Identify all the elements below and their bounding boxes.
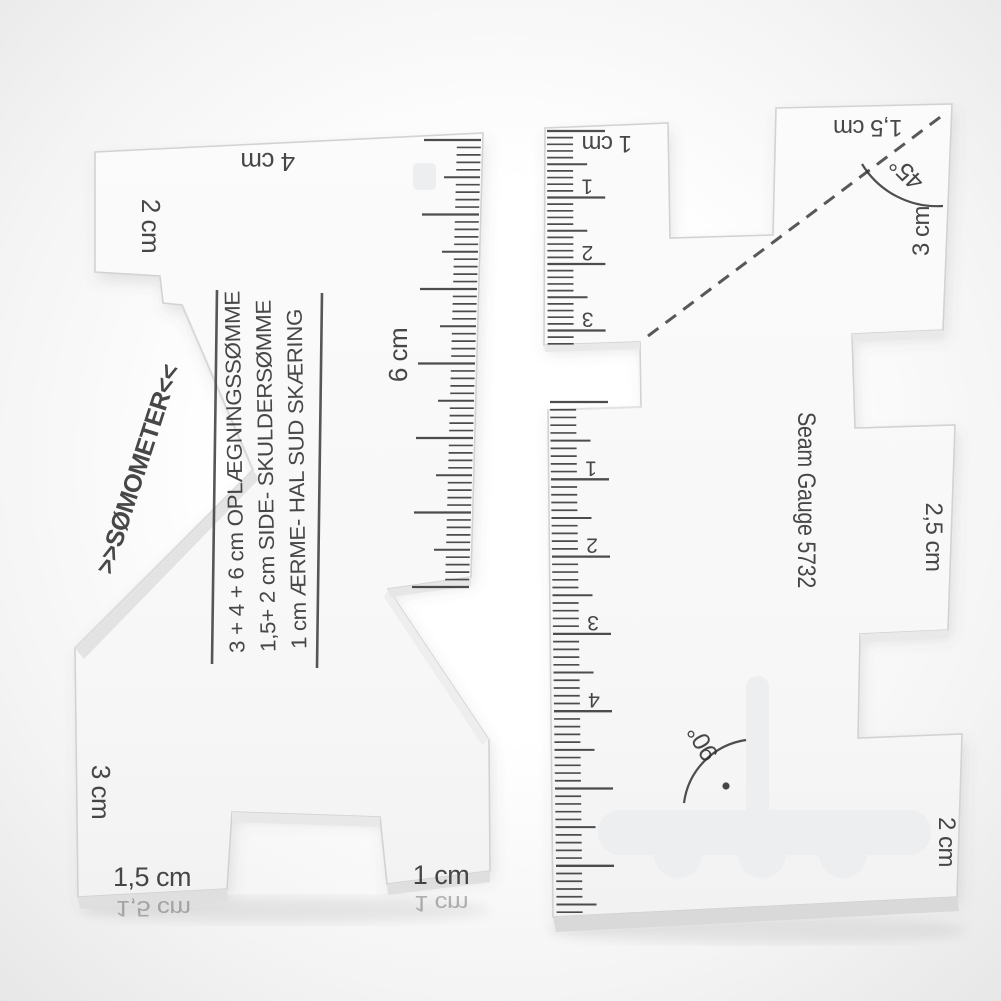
left-gauge-label-4cm: 4 cm: [241, 147, 295, 177]
left-gauge-label-2cm: 2 cm: [136, 199, 166, 253]
left-gauge-label-6cm: 6 cm: [383, 328, 413, 382]
right-gauge-label-2cm: 2 cm: [933, 817, 960, 867]
left-gauge-label-3cm: 3 cm: [86, 765, 116, 819]
scale-number: 2: [582, 241, 594, 264]
left-gauge-instruction-1: 3 + 4 + 6 cm OPLÆGNINGSSØMME: [220, 291, 249, 653]
left-gauge-instruction-2: 1,5+ 2 cm SIDE- SKULDERSØMME: [252, 300, 281, 652]
scale-number: 3: [582, 308, 594, 331]
left-gauge-instruction-3: 1 cm ÆRME- HAL SUD SKÆRING: [283, 309, 312, 649]
right-gauge-label-2-5cm: 2,5 cm: [920, 502, 947, 571]
scale-number: 1: [585, 456, 597, 479]
right-gauge-dot-mark: [722, 782, 729, 789]
left-gauge-reflection-1cm: 1 cm: [414, 891, 468, 916]
left-gauge-label-1-5cm: 1,5 cm: [113, 862, 191, 892]
product-photo: >>SØMOMETER<< 3 + 4 + 6 cm OPLÆGNINGSSØM…: [0, 0, 1001, 1001]
right-gauge: 1 cm 1,5 cm 45° 3 cm Seam Gauge 5732 2,5…: [544, 104, 962, 932]
left-gauge-brand: >>SØMOMETER<<: [91, 361, 185, 577]
scale-number: 1: [581, 175, 593, 198]
left-gauge: >>SØMOMETER<< 3 + 4 + 6 cm OPLÆGNINGSSØM…: [75, 133, 490, 920]
left-gauge-square-hole: [413, 163, 436, 190]
scale-number: 2: [586, 534, 598, 557]
right-gauge-model: Seam Gauge 5732: [792, 412, 820, 588]
left-gauge-label-1cm: 1 cm: [413, 860, 470, 890]
gauges-illustration: >>SØMOMETER<< 3 + 4 + 6 cm OPLÆGNINGSSØM…: [0, 0, 1001, 1001]
scale-number: 3: [587, 611, 599, 634]
right-gauge-label-1-5cm: 1,5 cm: [833, 114, 902, 141]
scale-number: 4: [588, 688, 600, 711]
right-gauge-label-3cm: 3 cm: [908, 206, 935, 256]
right-gauge-label-1cm: 1 cm: [582, 130, 632, 157]
left-gauge-reflection-1-5cm: 1,5 cm: [116, 896, 191, 921]
